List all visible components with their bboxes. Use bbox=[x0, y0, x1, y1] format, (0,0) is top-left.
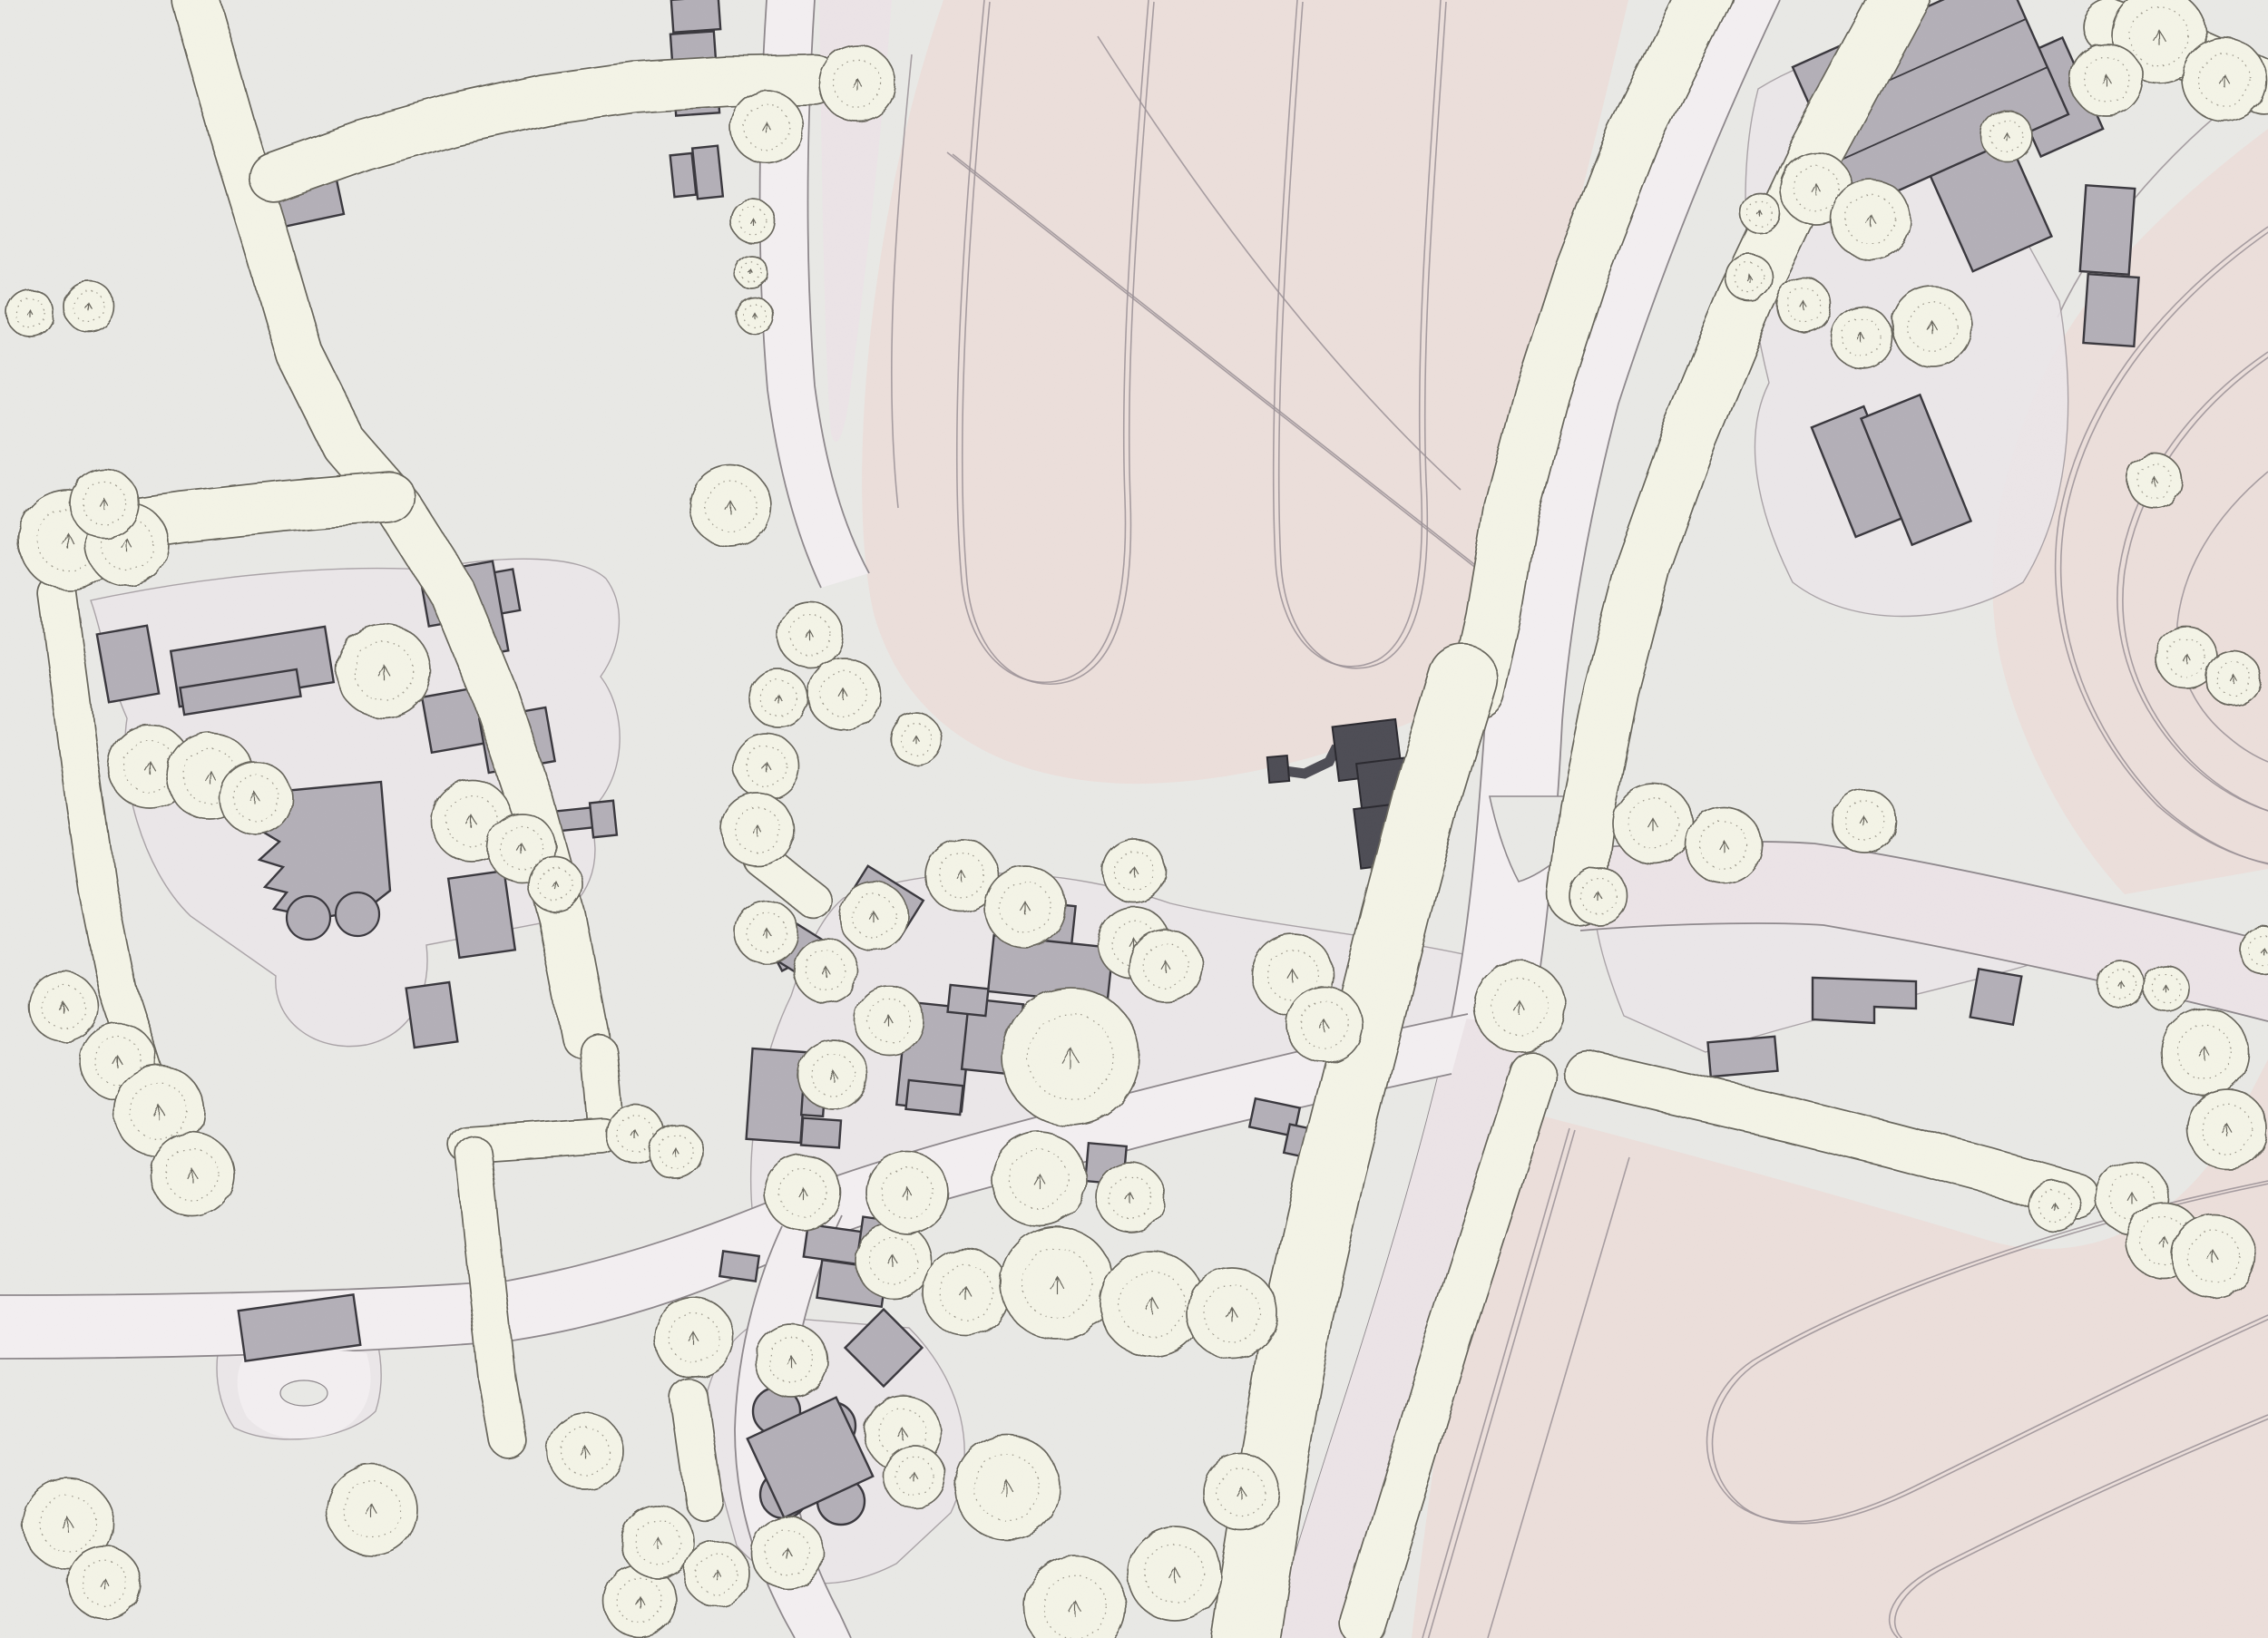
site-plan bbox=[0, 0, 2268, 1638]
site-plan-map bbox=[0, 0, 2268, 1638]
paper-grain-overlay bbox=[0, 0, 2268, 1638]
